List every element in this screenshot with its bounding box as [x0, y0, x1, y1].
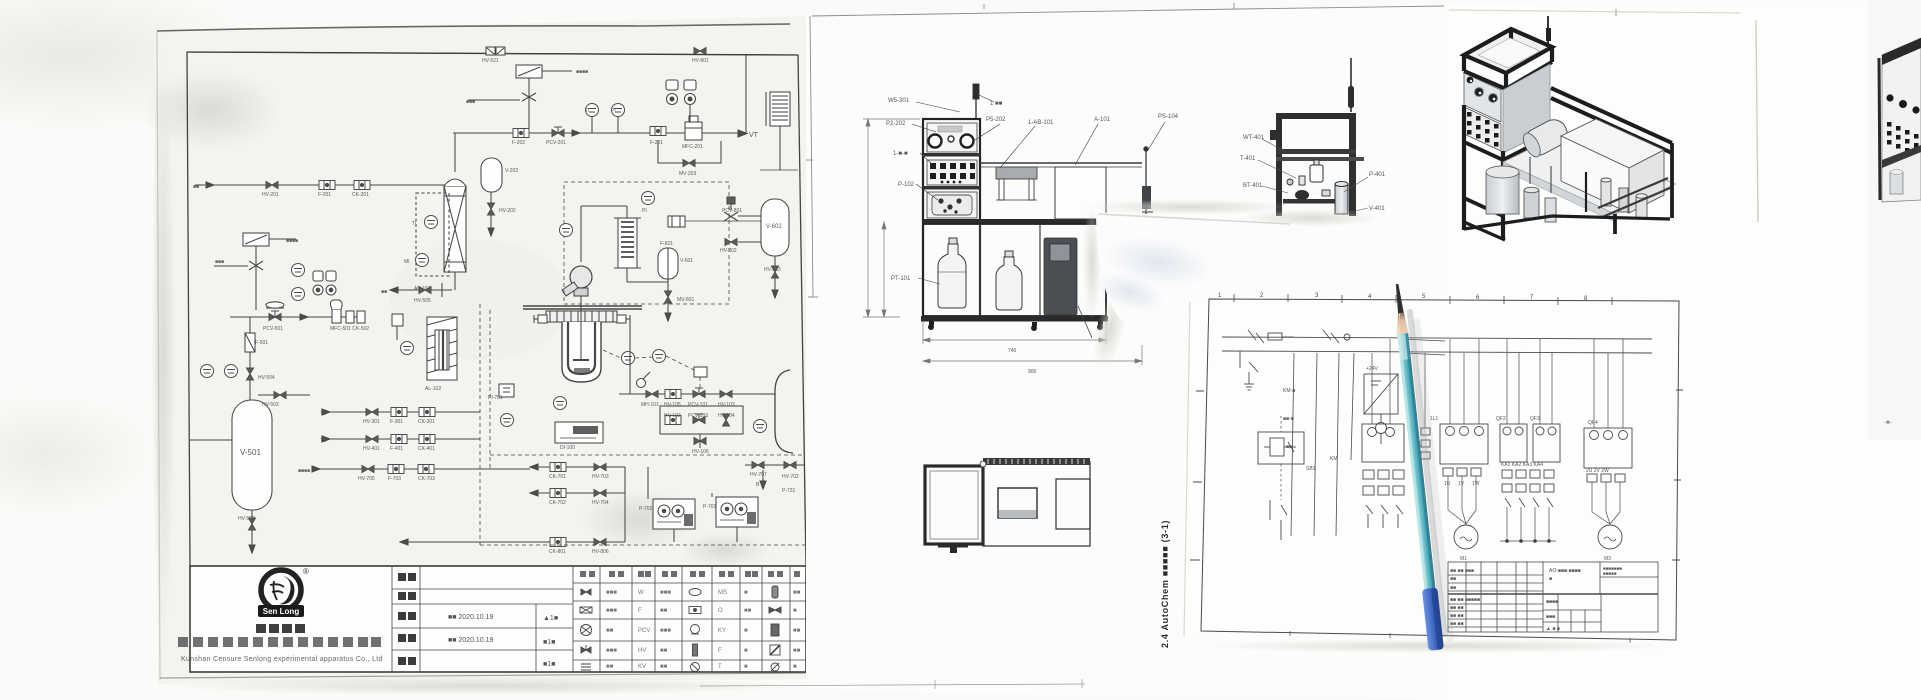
svg-text:■■: ■■ [660, 648, 668, 654]
svg-text:T-401: T-401 [1240, 156, 1256, 162]
svg-text:DI-100: DI-100 [560, 445, 575, 451]
svg-text:F-201: F-201 [318, 192, 331, 198]
svg-text:A-101: A-101 [1094, 117, 1111, 123]
svg-text:HV-521: HV-521 [482, 58, 499, 64]
svg-text:PCV: PCV [638, 628, 650, 634]
svg-text:QF3: QF3 [1530, 416, 1540, 422]
svg-text:PCV-801: PCV-801 [722, 208, 742, 214]
svg-text:1W: 1W [1472, 481, 1480, 487]
svg-text:WT-401: WT-401 [1243, 135, 1265, 141]
svg-text:HV-502: HV-502 [238, 516, 255, 522]
svg-text:HV-102: HV-102 [664, 413, 681, 419]
svg-text:F-703: F-703 [388, 476, 401, 482]
svg-text:PCV-201: PCV-201 [546, 140, 566, 146]
svg-text:KM-■: KM-■ [1283, 388, 1295, 394]
svg-text:2U 2V 2W: 2U 2V 2W [1586, 468, 1609, 474]
svg-text:HV-106: HV-106 [692, 449, 709, 455]
svg-text:■■■■■: ■■■■■ [1603, 571, 1617, 576]
svg-text:■■: ■■ [193, 184, 199, 190]
svg-text:■■: ■■ [660, 664, 668, 670]
svg-text:M1: M1 [1460, 556, 1467, 562]
svg-text:CK-702: CK-702 [549, 500, 566, 506]
svg-text:W5-301: W5-301 [888, 98, 910, 104]
svg-text:■■: ■■ [606, 628, 614, 634]
svg-text:PI: PI [611, 108, 616, 114]
svg-text:HV-801: HV-801 [692, 58, 709, 64]
svg-text:F-301: F-301 [390, 419, 403, 425]
svg-text:■■■■: ■■■■ [286, 238, 298, 244]
svg-text:■: ■ [744, 628, 748, 634]
svg-text:■■■: ■■■ [660, 628, 671, 634]
svg-text:■1■: ■1■ [543, 661, 555, 668]
svg-text:1-AB-101: 1-AB-101 [1028, 120, 1054, 126]
svg-text:®: ® [303, 567, 309, 576]
svg-text:-■-: -■- [1884, 420, 1892, 426]
svg-text:■: ■ [744, 590, 748, 596]
svg-text:QF4: QF4 [1588, 420, 1598, 426]
svg-text:P-102: P-102 [898, 182, 915, 188]
svg-text:■■■: ■■■ [606, 648, 617, 654]
svg-text:W: W [638, 590, 644, 596]
svg-text:Kunshan Censure Senlong experi: Kunshan Censure Senlong experimental app… [181, 656, 383, 663]
svg-text:HV: HV [638, 648, 646, 654]
svg-text:■■: ■■ [1450, 576, 1456, 582]
svg-text:PCV-101: PCV-101 [688, 402, 708, 408]
svg-text:■: ■ [744, 648, 748, 654]
svg-text:■: ■ [793, 664, 797, 670]
svg-text:▲1■: ▲1■ [543, 615, 558, 622]
svg-text:T1: T1 [320, 411, 326, 417]
svg-text:1V: 1V [1458, 481, 1465, 487]
svg-text:HV-806: HV-806 [592, 549, 609, 555]
svg-text:P-731: P-731 [782, 488, 796, 494]
svg-text:F-401: F-401 [390, 446, 403, 452]
svg-text:■■ ■■ ■■■: ■■ ■■ ■■■ [1450, 568, 1474, 574]
svg-text:MFC-201: MFC-201 [682, 144, 703, 150]
svg-text:■■: ■■ [744, 608, 752, 614]
svg-text:HV-505: HV-505 [414, 298, 431, 304]
svg-text:HV-202: HV-202 [499, 208, 516, 214]
svg-text:CK-201: CK-201 [352, 192, 369, 198]
svg-text:P2-202: P2-202 [886, 121, 906, 127]
svg-text:1U: 1U [1444, 481, 1451, 487]
svg-text:HV-401: HV-401 [363, 446, 380, 452]
svg-text:M3: M3 [1604, 556, 1611, 562]
svg-text:HV-504: HV-504 [258, 375, 275, 381]
svg-text:■■■: ■■■ [606, 590, 617, 596]
svg-text:F: F [638, 608, 642, 614]
svg-text:■■-■: ■■-■ [1283, 416, 1294, 422]
svg-text:V-501: V-501 [240, 448, 261, 457]
svg-text:+24V: +24V [1366, 366, 1378, 372]
svg-text:SB1: SB1 [1306, 466, 1316, 472]
svg-text:KY: KY [718, 628, 726, 634]
svg-text:T2: T2 [320, 438, 326, 444]
svg-text:HV-704: HV-704 [592, 500, 609, 506]
svg-text:■1■: ■1■ [543, 639, 555, 646]
svg-text:T: T [718, 664, 722, 670]
svg-text:AO-■■■-■■■■: AO-■■■-■■■■ [1549, 568, 1581, 574]
svg-text:HV-105: HV-105 [664, 402, 681, 408]
svg-text:MV-601: MV-601 [677, 297, 694, 303]
svg-text:■■■: ■■■ [1546, 614, 1555, 620]
svg-text:Sen Long: Sen Long [263, 607, 300, 616]
svg-text:CK-703: CK-703 [418, 476, 435, 482]
svg-text:■: ■ [1549, 576, 1552, 582]
svg-text:■■: ■■ [793, 628, 801, 634]
svg-text:TI: TI [585, 108, 589, 114]
svg-text:P5-202: P5-202 [986, 117, 1006, 123]
svg-text:HV-201: HV-201 [262, 192, 279, 198]
svg-text:■■: ■■ [606, 664, 614, 670]
svg-text:■■■: ■■■ [215, 259, 224, 265]
svg-text:HV-705: HV-705 [358, 476, 375, 482]
svg-text:PS-104: PS-104 [1158, 114, 1179, 120]
svg-text:KM: KM [1330, 456, 1338, 462]
svg-text:■■: ■■ [1450, 585, 1456, 591]
svg-text:PI-701: PI-701 [488, 395, 503, 401]
svg-text:■■ ■■: ■■ ■■ [1450, 605, 1463, 611]
svg-text:QF2: QF2 [1496, 416, 1506, 422]
svg-text:F-501: F-501 [255, 340, 268, 346]
svg-text:■■ 2020.10.19: ■■ 2020.10.19 [448, 637, 494, 644]
svg-text:P-401: P-401 [1369, 172, 1386, 178]
svg-text:■■■: ■■■ [606, 608, 617, 614]
svg-text:CK-301: CK-301 [418, 419, 435, 425]
svg-text:V-202: V-202 [505, 168, 518, 174]
svg-text:■■: ■■ [660, 608, 668, 614]
svg-text:HV-707: HV-707 [750, 472, 767, 478]
svg-text:HV-702: HV-702 [782, 474, 799, 480]
svg-text:CK-401: CK-401 [418, 446, 435, 452]
svg-text:■■■: ■■■ [660, 590, 671, 596]
svg-text:1L1: 1L1 [1430, 416, 1439, 422]
svg-text:F-821: F-821 [660, 241, 673, 247]
svg-text:PCV-103: PCV-103 [688, 413, 708, 419]
svg-text:F-202: F-202 [512, 140, 525, 146]
svg-text:■: ■ [744, 664, 748, 670]
svg-text:F: F [718, 648, 722, 654]
svg-text:HV-802: HV-802 [720, 248, 737, 254]
svg-text:MI: MI [404, 259, 410, 265]
svg-text:AL-102: AL-102 [414, 286, 430, 292]
svg-text:■■: ■■ [381, 289, 387, 295]
svg-text:TI: TI [412, 221, 416, 227]
svg-text:AL-102: AL-102 [425, 386, 441, 392]
svg-text:■■■■: ■■■■ [298, 468, 310, 474]
svg-text:1 ■■: 1 ■■ [990, 101, 1003, 107]
svg-text:B G: B G [756, 482, 765, 488]
svg-text:▲ ■ ■: ▲ ■ ■ [1546, 626, 1560, 632]
svg-text:■■■: ■■■ [466, 99, 475, 105]
svg-text:CK-701: CK-701 [549, 474, 566, 480]
svg-text:MV-203: MV-203 [679, 171, 696, 177]
svg-text:KV: KV [638, 664, 646, 670]
svg-text:■: ■ [793, 608, 797, 614]
svg-text:MH-101: MH-101 [641, 402, 659, 408]
svg-text:F-201: F-201 [650, 140, 663, 146]
svg-text:CK-801: CK-801 [549, 549, 566, 555]
svg-text:BT-401: BT-401 [1243, 183, 1263, 189]
svg-text:P-702: P-702 [639, 506, 653, 512]
svg-text:PCV-501: PCV-501 [263, 326, 283, 332]
svg-text:PT-101: PT-101 [891, 276, 911, 282]
svg-text:VT: VT [749, 132, 759, 139]
svg-text:HV-103: HV-103 [718, 402, 735, 408]
svg-text:■■: ■■ [793, 590, 801, 596]
svg-text:MFC-501 CK-502: MFC-501 CK-502 [330, 326, 369, 332]
svg-text:■■■■: ■■■■ [576, 69, 588, 75]
svg-text:■■ ■■ ■■■■■: ■■ ■■ ■■■■■ [1450, 597, 1480, 603]
svg-text:■■■■: ■■■■ [1546, 599, 1558, 605]
svg-text:905: 905 [1028, 369, 1037, 375]
svg-text:PI: PI [642, 208, 647, 214]
svg-text:2.4 AutoChem ■■■■■ (3-1): 2.4 AutoChem ■■■■■ (3-1) [1160, 520, 1170, 648]
svg-text:745: 745 [1008, 348, 1017, 354]
svg-text:KA1 KA2 KA3 KA4: KA1 KA2 KA3 KA4 [1501, 462, 1543, 468]
svg-text:V-601: V-601 [680, 258, 693, 264]
svg-text:■■ 2020.10.19: ■■ 2020.10.19 [448, 614, 494, 621]
svg-text:P-701: P-701 [703, 504, 717, 510]
svg-text:V-401: V-401 [1369, 206, 1385, 212]
svg-text:HV-301: HV-301 [363, 419, 380, 425]
svg-text:HV-104: HV-104 [718, 413, 735, 419]
svg-text:MS: MS [718, 590, 727, 596]
svg-text:V-602: V-602 [766, 224, 782, 230]
svg-text:■■: ■■ [793, 648, 801, 654]
svg-text:HV-703: HV-703 [592, 474, 609, 480]
svg-text:1-■-■: 1-■-■ [893, 151, 908, 157]
svg-text:■■: ■■ [1286, 444, 1292, 450]
svg-text:HV-503: HV-503 [262, 402, 279, 408]
svg-text:HV-803: HV-803 [764, 267, 781, 273]
svg-text:O: O [718, 608, 723, 614]
